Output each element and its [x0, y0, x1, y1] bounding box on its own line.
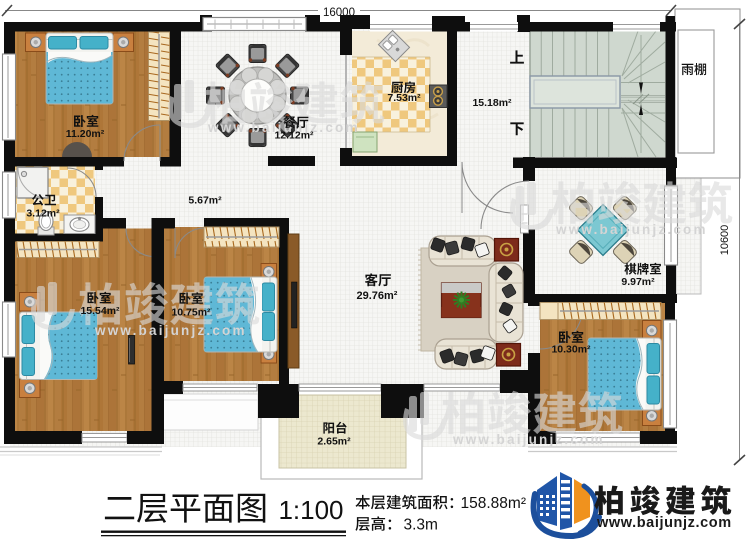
svg-text:29.76m²: 29.76m²: [357, 290, 398, 302]
svg-text:15.18m²: 15.18m²: [472, 97, 512, 109]
svg-text:www.baijunjz.com: www.baijunjz.com: [94, 323, 247, 338]
svg-text:10600: 10600: [719, 225, 731, 256]
svg-text:www.baijunjz.com: www.baijunjz.com: [596, 515, 732, 531]
svg-text:9.97m²: 9.97m²: [621, 276, 655, 288]
svg-text:12.12m²: 12.12m²: [274, 130, 314, 142]
svg-text:3.12m²: 3.12m²: [26, 208, 60, 220]
svg-text:10.30m²: 10.30m²: [551, 344, 591, 356]
svg-text:www.baijunjz.com: www.baijunjz.com: [452, 432, 605, 447]
svg-text:15.54m²: 15.54m²: [80, 305, 120, 317]
svg-text:2.65m²: 2.65m²: [317, 436, 351, 448]
svg-text:11.20m²: 11.20m²: [66, 128, 105, 140]
svg-text:www.baijunjz.com: www.baijunjz.com: [555, 222, 708, 237]
svg-text:158.88m²: 158.88m²: [461, 495, 526, 512]
svg-text:1:100: 1:100: [278, 495, 343, 525]
svg-text:7.53m²: 7.53m²: [387, 92, 421, 104]
svg-text:3.3m: 3.3m: [404, 517, 438, 534]
svg-text:16000: 16000: [323, 7, 355, 19]
svg-text:10.75m²: 10.75m²: [171, 307, 211, 319]
svg-text:5.67m²: 5.67m²: [188, 195, 222, 207]
